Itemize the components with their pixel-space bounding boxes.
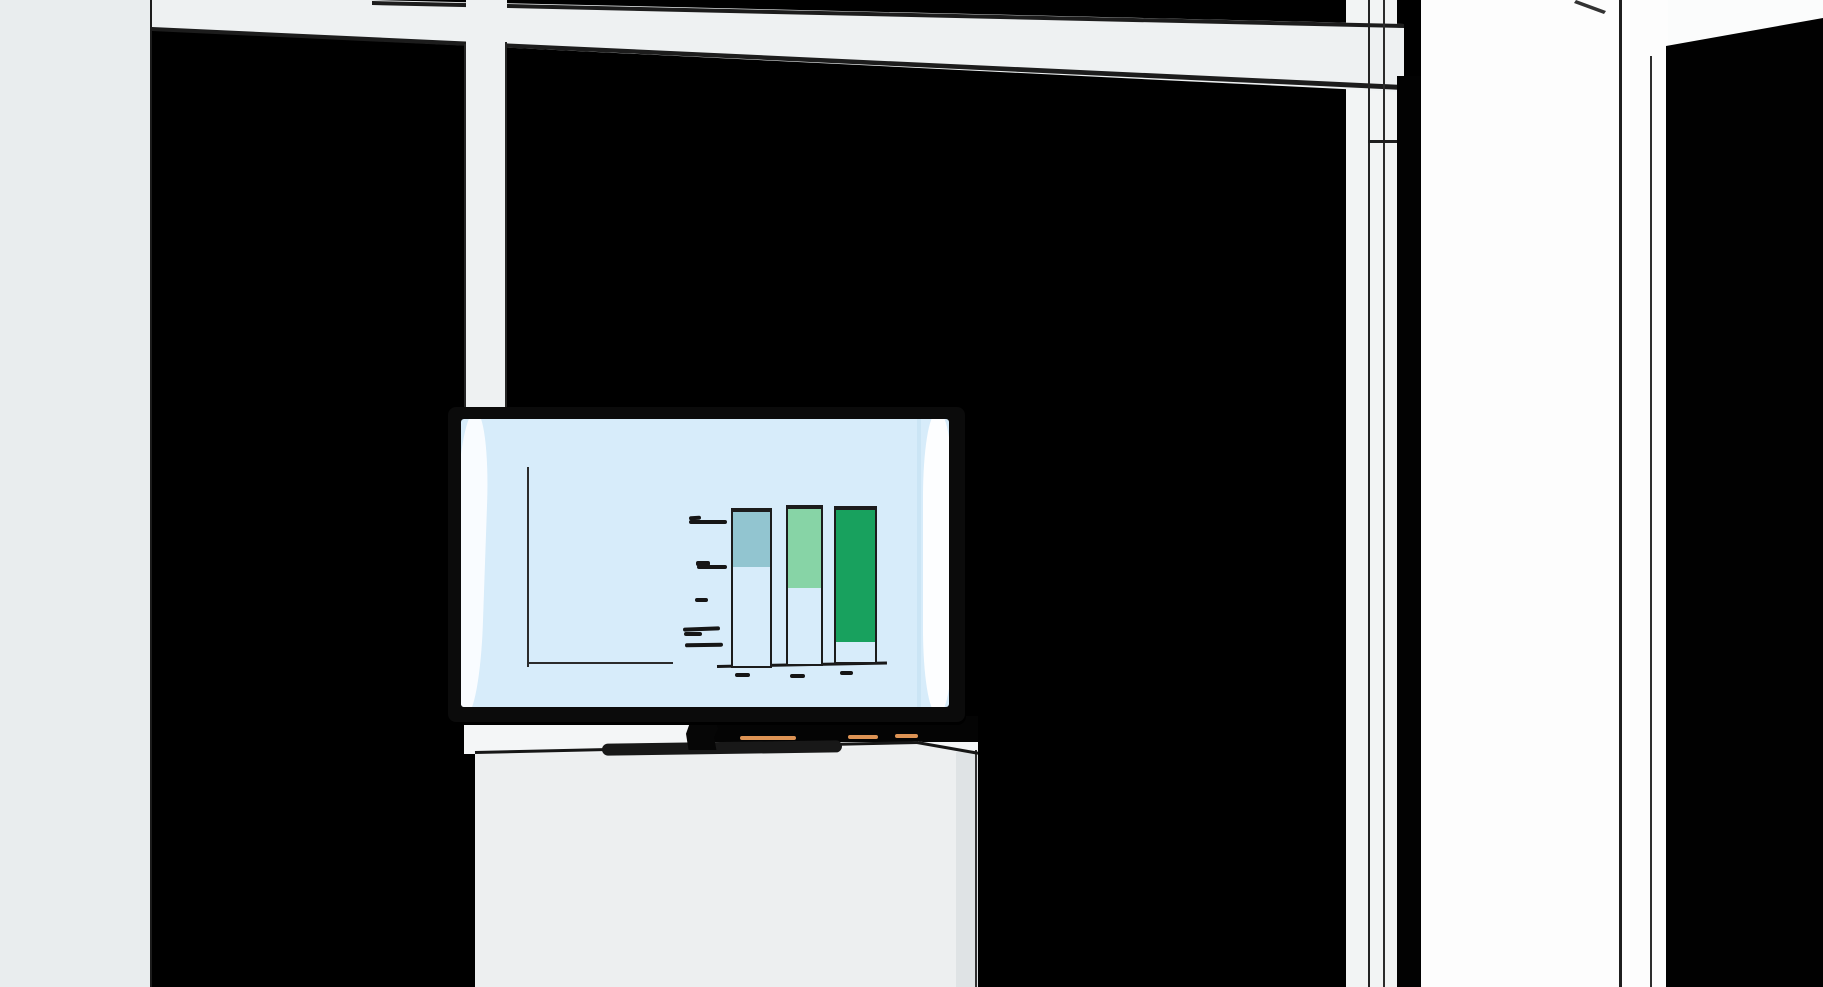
chart-x-axis: [527, 662, 673, 664]
stacked-bar-2: [786, 505, 823, 666]
y-tick-dash: [697, 565, 727, 569]
stacked-bar-3: [834, 506, 877, 664]
mullion-outline-b: [1383, 0, 1385, 987]
tv: [448, 407, 965, 722]
right-wall-panel: [1421, 0, 1668, 987]
y-tick-dash: [685, 643, 723, 648]
bar-segment-light_green: [788, 507, 821, 588]
y-tick-dash: [695, 598, 708, 602]
x-tick-dash: [790, 674, 805, 678]
stacked-bar-1: [731, 508, 772, 668]
narrow-window-pane: [1397, 76, 1421, 987]
bar-segment-light_blue: [733, 510, 770, 567]
screen-glare-right: [923, 419, 949, 707]
mullion-outline-a: [1368, 0, 1370, 987]
illustration-scene: [0, 0, 1823, 987]
cabinet-back-edge-accent: [895, 734, 918, 738]
chart-y-axis: [527, 467, 529, 667]
y-tick-dash: [689, 520, 727, 524]
tv-screen: [461, 419, 949, 707]
y-tick-dash: [683, 626, 720, 631]
x-tick-dash: [735, 673, 750, 677]
screen-glare-streak: [917, 419, 921, 707]
x-tick-dash: [840, 671, 853, 675]
bar-segment-dark_green: [836, 508, 875, 642]
right-window-pane: [1660, 0, 1823, 987]
screen-glare-left: [461, 419, 490, 707]
y-tick-dash: [684, 632, 702, 636]
media-cabinet: [475, 741, 978, 987]
wall-corner-edge-line: [1619, 0, 1622, 987]
media-cabinet-right-outline: [975, 750, 977, 987]
left-wall-panel: [0, 0, 152, 987]
cabinet-back-edge-accent: [848, 735, 878, 739]
mullion-joint-line: [1368, 140, 1397, 143]
right-frame-edge-line: [1650, 56, 1652, 987]
cabinet-back-edge-accent: [740, 736, 796, 740]
window-mullion-panel: [1346, 0, 1397, 987]
